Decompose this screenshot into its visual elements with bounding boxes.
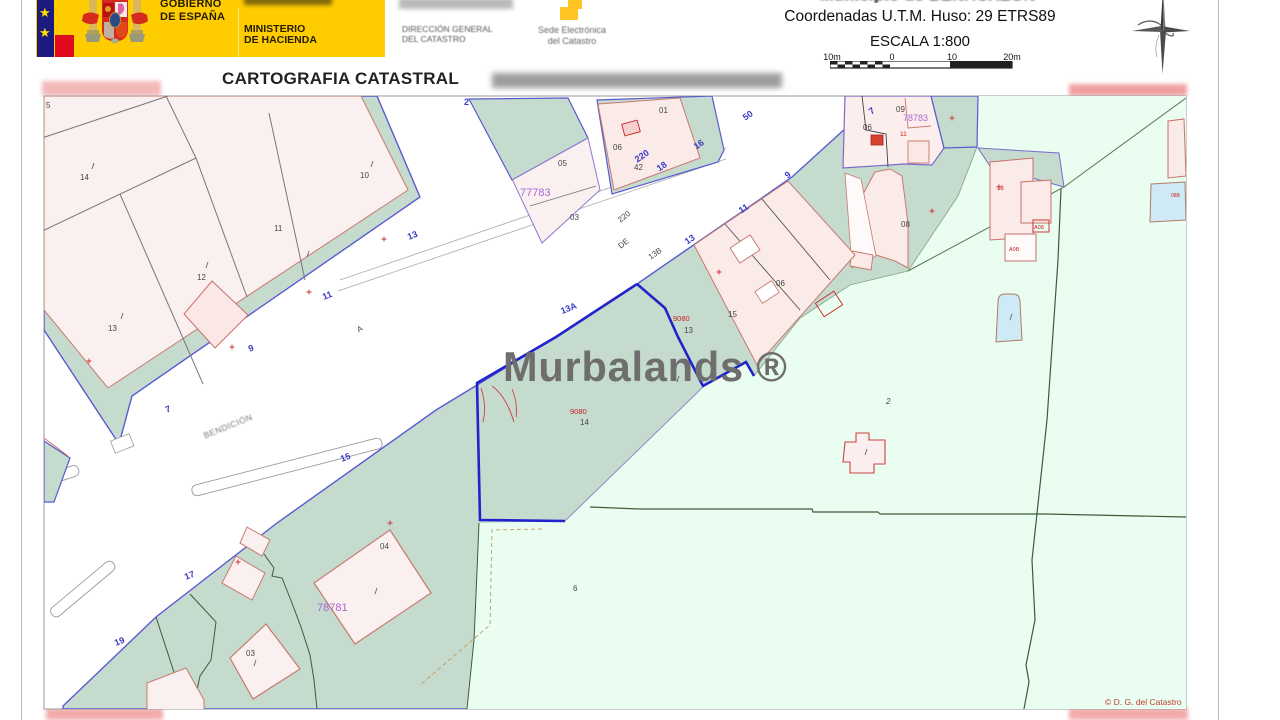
svg-text:13: 13: [684, 326, 693, 335]
svg-text:06: 06: [776, 279, 785, 288]
svg-text:6: 6: [573, 584, 578, 593]
svg-text:A0B: A0B: [1009, 247, 1020, 253]
svg-text:77783: 77783: [520, 187, 551, 199]
svg-text:11: 11: [274, 224, 283, 233]
svg-text:12: 12: [197, 273, 206, 282]
svg-text:2: 2: [464, 97, 469, 107]
svg-text:14: 14: [580, 418, 589, 427]
svg-text:01: 01: [659, 106, 668, 115]
svg-text:03: 03: [246, 649, 255, 658]
svg-text:04: 04: [380, 542, 389, 551]
svg-text:9080: 9080: [673, 314, 690, 323]
svg-text:18: 18: [997, 186, 1004, 192]
svg-text:© D. G. del Catastro: © D. G. del Catastro: [1105, 697, 1182, 707]
svg-text:A08: A08: [1034, 225, 1044, 231]
svg-text:08B: 08B: [1171, 193, 1181, 199]
svg-text:14: 14: [80, 173, 89, 182]
svg-text:78781: 78781: [317, 602, 348, 614]
svg-text:06: 06: [863, 123, 872, 132]
svg-text:15: 15: [728, 310, 737, 319]
svg-text:05: 05: [558, 159, 567, 168]
svg-text:Murbalands ®: Murbalands ®: [503, 343, 788, 390]
svg-text:9080: 9080: [570, 407, 587, 416]
svg-text:03: 03: [570, 213, 579, 222]
svg-text:06: 06: [613, 143, 622, 152]
svg-text:10: 10: [360, 171, 369, 180]
svg-text:11: 11: [900, 131, 907, 138]
svg-text:2: 2: [885, 397, 891, 406]
svg-text:78783: 78783: [903, 113, 928, 123]
svg-text:08: 08: [901, 220, 910, 229]
svg-text:13: 13: [108, 324, 117, 333]
svg-text:5: 5: [46, 101, 51, 110]
svg-text:42: 42: [634, 163, 643, 172]
